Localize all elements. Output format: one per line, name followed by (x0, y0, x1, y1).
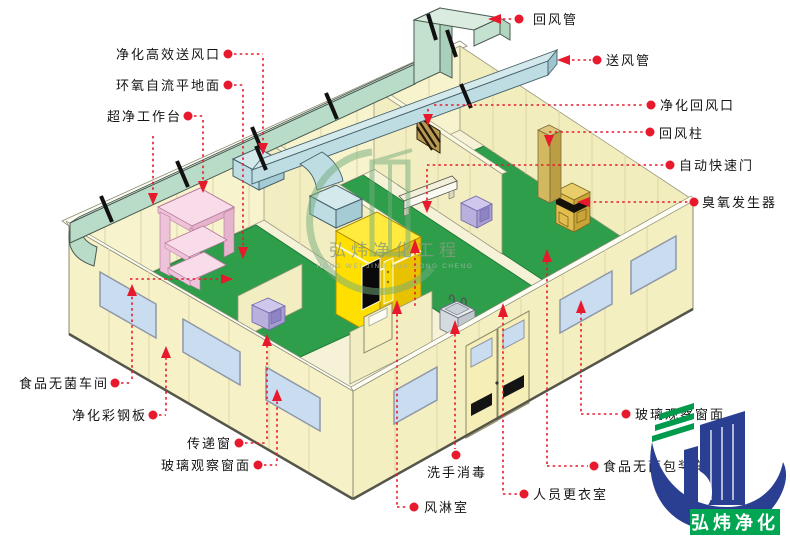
label-purif-return-vent: 净化回风口 (660, 98, 735, 113)
label-changing-room: 人员更衣室 (533, 487, 608, 502)
label-glass-window-left: 玻璃观察窗面 (161, 458, 251, 473)
label-food-clean-room: 食品无菌车间 (19, 376, 109, 391)
label-clean-bench: 超净工作台 (107, 109, 182, 124)
label-ozone-generator: 臭氧发生器 (702, 195, 777, 210)
label-air-shower: 风淋室 (424, 500, 469, 515)
brand-name: 弘炜净化 (691, 512, 779, 533)
label-supply-duct: 送风管 (606, 53, 651, 68)
label-clean-steel-panel: 净化彩钢板 (72, 408, 147, 423)
cleanroom-diagram: 弘炜净化工程 HONG WEI JING HUA GONG CHENG (0, 0, 790, 545)
watermark-text-en: HONG WEI JING HUA GONG CHENG (316, 263, 473, 270)
label-return-column: 回风柱 (659, 126, 704, 141)
label-return-duct: 回风管 (533, 12, 578, 27)
label-transfer-window: 传递窗 (187, 436, 232, 451)
label-epoxy-floor: 环氧自流平地面 (116, 78, 221, 93)
diagram-canvas: 弘炜净化工程 HONG WEI JING HUA GONG CHENG (0, 0, 790, 545)
watermark-text-cn: 弘炜净化工程 (329, 241, 461, 260)
label-hepa-supply-vent: 净化高效送风口 (116, 47, 221, 62)
label-hand-wash: 洗手消毒 (427, 465, 487, 480)
label-auto-rapid-door: 自动快速门 (679, 158, 754, 173)
